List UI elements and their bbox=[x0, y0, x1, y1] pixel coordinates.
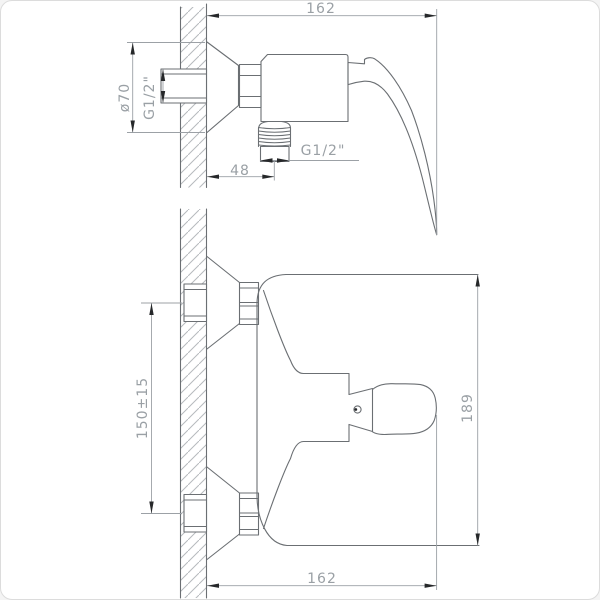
escutcheon-cone bbox=[207, 42, 239, 133]
dim-label-189: 189 bbox=[460, 393, 476, 423]
technical-drawing: 162 ø70 G1/2" G1/2" 48 bbox=[1, 1, 599, 599]
arrowhead bbox=[149, 502, 153, 514]
plan-view: 150±15 189 162 bbox=[135, 209, 480, 598]
arrowhead bbox=[476, 275, 480, 287]
side-view: 162 ø70 G1/2" G1/2" 48 bbox=[117, 1, 437, 235]
arrowhead bbox=[131, 121, 135, 133]
escutcheon-cone-upper bbox=[207, 257, 240, 350]
union-nut bbox=[240, 65, 262, 108]
dim-label-162-top: 162 bbox=[306, 1, 336, 17]
arrowhead bbox=[476, 534, 480, 546]
union-nut-upper bbox=[240, 283, 259, 325]
handle-lever-side bbox=[348, 58, 437, 235]
arrowhead bbox=[262, 175, 274, 179]
dim-label-162-bottom: 162 bbox=[307, 571, 337, 587]
body-shoulder-upper bbox=[264, 291, 350, 395]
dim-label-outlet-thread: G1/2" bbox=[301, 143, 346, 159]
handle-knob-plan bbox=[373, 384, 437, 435]
arrowhead bbox=[207, 175, 219, 179]
dim-label-wall-thread: G1/2" bbox=[142, 75, 158, 120]
outlet-thread bbox=[259, 128, 291, 147]
faucet-body-side bbox=[261, 55, 348, 122]
wall-section-hatch-bottom bbox=[181, 209, 207, 598]
dim-label-escutcheon-diameter: ø70 bbox=[117, 83, 133, 112]
union-nut-lower bbox=[240, 493, 259, 535]
escutcheon-cone-lower bbox=[207, 467, 240, 560]
outlet-thread-edges bbox=[259, 128, 291, 147]
arrowhead bbox=[207, 584, 219, 588]
drawing-canvas: 162 ø70 G1/2" G1/2" 48 bbox=[0, 0, 600, 600]
dim-label-48: 48 bbox=[230, 163, 250, 179]
dim-label-inlet-spacing: 150±15 bbox=[135, 377, 151, 439]
handle-screw-dot bbox=[354, 408, 357, 411]
outlet-collar bbox=[261, 147, 290, 162]
body-shoulder-lower bbox=[264, 425, 350, 529]
arrowhead bbox=[131, 43, 135, 55]
arrowhead bbox=[149, 303, 153, 315]
outlet-shoulder bbox=[259, 122, 291, 129]
arrowhead bbox=[207, 14, 219, 18]
arrowhead bbox=[425, 584, 437, 588]
arrowhead bbox=[425, 14, 437, 18]
